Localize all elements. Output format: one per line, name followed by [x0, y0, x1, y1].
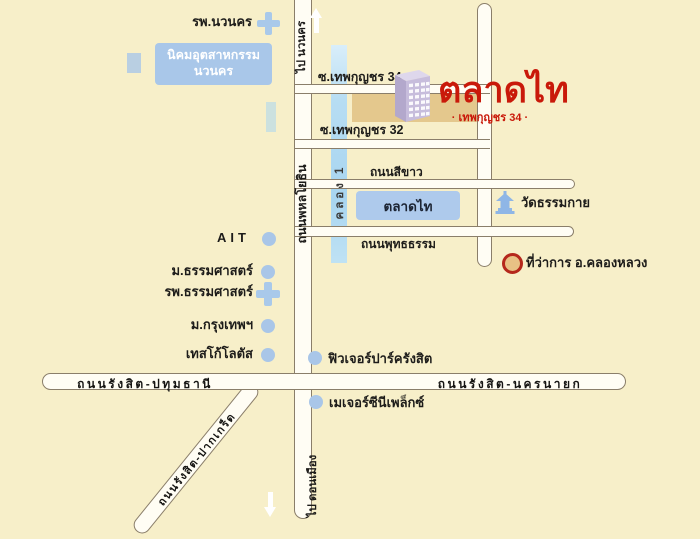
talaadthai-location-map: ถนนรังสิต-ปากเกร็ด ถนนรังสิต-ปทุมธานี ถน… — [0, 0, 700, 539]
label-thammasat-university: ม.ธรรมศาสตร์ — [171, 264, 253, 279]
label-tesco-lotus: เทสโก้โลตัส — [186, 347, 253, 362]
map-edge-blue-patch — [127, 53, 141, 73]
navanakorn-industrial-estate-box: นิคมอุตสาหกรรม นวนคร — [155, 43, 272, 85]
future-park-marker — [308, 351, 322, 365]
bangkok-university-marker — [261, 319, 275, 333]
label-navanakorn-hospital: รพ.นวนคร — [192, 15, 252, 30]
label-district-office: ที่ว่าการ อ.คลองหลวง — [526, 256, 647, 271]
hospital-cross-icon — [257, 12, 280, 35]
thammasat-university-marker — [261, 265, 275, 279]
label-thammasat-hospital: รพ.ธรรมศาสตร์ — [164, 285, 253, 300]
label-ait: AIT — [217, 231, 250, 246]
talaadthai-building-icon — [386, 68, 434, 124]
road-soi-tepkunchon-32 — [295, 139, 490, 149]
hospital-cross-icon — [256, 282, 280, 306]
label-wat-dhammakaya: วัดธรรมกาย — [521, 196, 590, 211]
map-subtitle: · เทพกุญชร 34 · — [444, 108, 536, 126]
map-title: ตลาดไท — [438, 72, 569, 108]
road-label-rangsit-pathumthani: ถนนรังสิต-ปทุมธานี — [55, 375, 235, 394]
major-cineplex-marker — [309, 395, 323, 409]
district-office-marker — [502, 253, 523, 274]
road-rangsit-pakkret: ถนนรังสิต-ปากเกร็ด — [130, 380, 262, 537]
talaadthai-market-box: ตลาดไท — [356, 191, 460, 220]
estate-label-line2: นวนคร — [194, 64, 233, 80]
road-label-soi32: ซ.เทพกุญชร 32 — [320, 123, 404, 137]
label-future-park: ฟิวเจอร์ปาร์ครังสิต — [328, 352, 432, 367]
ait-marker — [262, 232, 276, 246]
estate-label-line1: นิคมอุตสาหกรรม — [167, 48, 260, 64]
temple-icon — [494, 191, 516, 214]
road-label-phahonyothin: ถนนพหลโยธิน — [292, 154, 312, 254]
label-major-cineplex: เมเจอร์ซีนีเพล็กซ์ — [329, 396, 424, 411]
south-direction-arrow-icon — [264, 492, 276, 517]
road-phahonyothin — [294, 0, 312, 519]
road-label-to-navanakorn: ไป นวนคร — [293, 17, 311, 77]
road-label-rangsit-pakkret: ถนนรังสิต-ปากเกร็ด — [152, 408, 239, 510]
road-label-rangsit-nakhonnayok: ถนนรังสิต-นครนายก — [420, 375, 600, 394]
canal-label-khlong1: คลอง 1 — [331, 152, 349, 232]
canal-fragment — [266, 102, 276, 132]
tesco-lotus-marker — [261, 348, 275, 362]
road-label-phuttatham: ถนนพุทธธรรม — [361, 238, 436, 252]
road-label-to-donmueang: ไป ดอนเมือง — [304, 454, 322, 518]
road-label-sikhao: ถนนสีขาว — [370, 166, 423, 180]
north-direction-arrow-icon — [310, 8, 322, 33]
label-bangkok-university: ม.กรุงเทพฯ — [191, 318, 253, 333]
talaadthai-box-label: ตลาดไท — [383, 195, 432, 217]
